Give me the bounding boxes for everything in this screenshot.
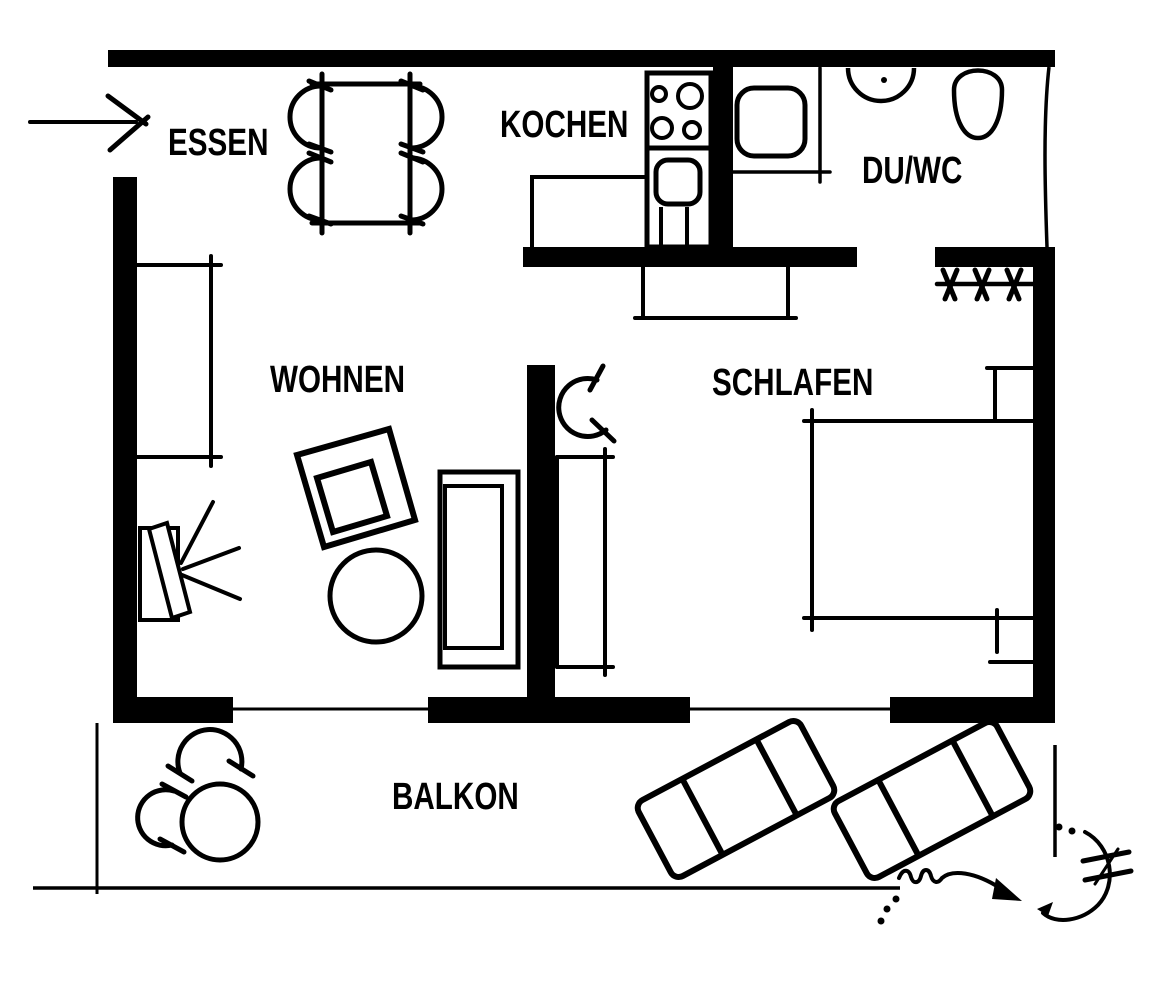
wardrobe-icon: [557, 449, 613, 675]
balcony-chair-icon: [168, 730, 253, 781]
balcony-table-icon: [182, 784, 258, 860]
toilet-icon: [954, 71, 1002, 139]
dining-chair-icon: [290, 153, 331, 224]
room-label-kochen: KOCHEN: [500, 106, 628, 146]
sun-lounger-icon: [831, 719, 1034, 881]
door-swing-icon: [559, 366, 614, 441]
dining-chair-icon: [290, 81, 331, 152]
dresser-icon: [635, 267, 796, 318]
nightstand-icon: [987, 368, 1033, 421]
room-label-schlafen: SCHLAFEN: [712, 364, 873, 404]
sofa-icon: [440, 472, 518, 667]
entry-arrow-icon: [30, 96, 148, 150]
sideboard-icon: [137, 256, 221, 466]
bed-icon: [804, 410, 1033, 630]
tv-icon: [140, 502, 240, 620]
wall-kitchen-duwc: [713, 60, 733, 267]
room-label-wohnen: WOHNEN: [270, 361, 405, 401]
sun-lounger-icon: [635, 718, 838, 880]
dining-chair-icon: [401, 81, 442, 152]
kitchen-counter: [532, 177, 647, 247]
stove-icon: [647, 73, 711, 148]
coat-rack-icon: [937, 270, 1035, 299]
balcony-chair-icon: [138, 784, 186, 852]
dining-chair-icon: [401, 153, 442, 224]
wall-bottom-segment-2: [428, 697, 690, 723]
room-label-essen: ESSEN: [168, 124, 268, 164]
wall-bottom-segment-1: [113, 697, 233, 723]
shower-icon: [733, 68, 830, 182]
floor-plan: ESSEN KOCHEN DU/WC WOHNEN SCHLAFEN BALKO…: [0, 0, 1163, 1000]
wall-left: [113, 177, 137, 723]
wall-duwc-south: [935, 247, 1055, 267]
wall-wohnen-schlafen: [527, 365, 555, 723]
coffee-table-icon: [330, 550, 422, 642]
wall-right: [1033, 247, 1055, 723]
wall-duwc-right-thin: [1045, 67, 1049, 247]
wall-kitchen-south: [523, 247, 857, 267]
wall-bottom-segment-3: [890, 697, 1055, 723]
wall-top: [108, 50, 1055, 67]
washbasin-icon: [848, 68, 914, 101]
kitchen-sink-icon: [647, 148, 711, 247]
room-label-duwc: DU/WC: [862, 152, 962, 192]
armchair-icon: [297, 429, 415, 547]
room-label-balkon: BALKON: [392, 778, 519, 818]
